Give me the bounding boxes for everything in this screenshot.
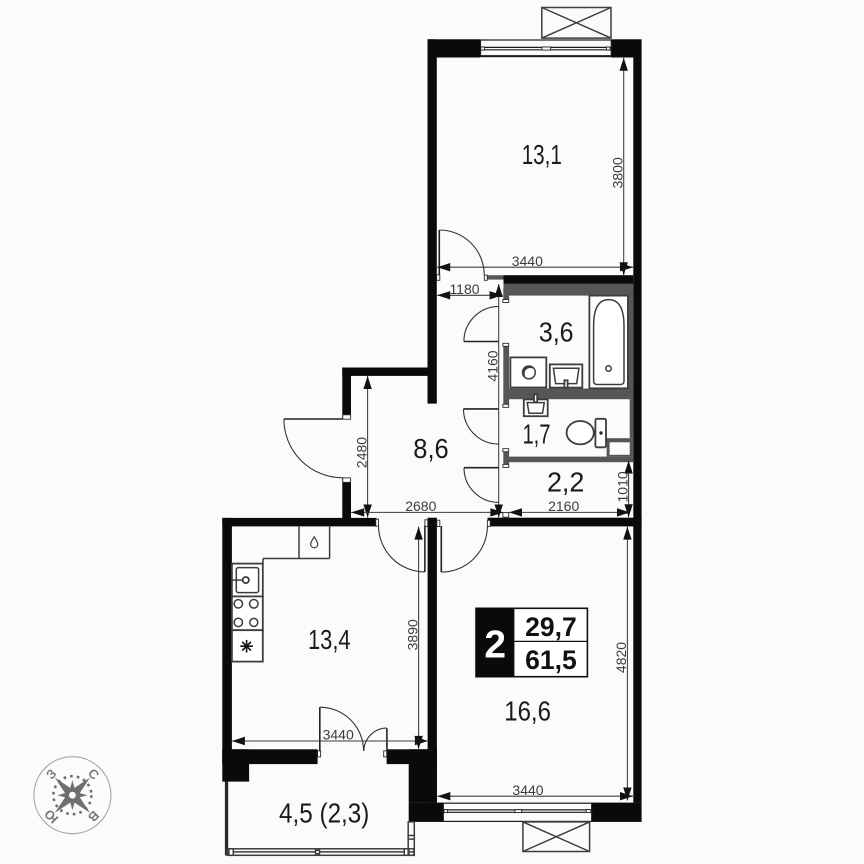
svg-text:2160: 2160 (548, 498, 579, 514)
svg-text:16,6: 16,6 (504, 695, 551, 726)
svg-text:13,1: 13,1 (522, 139, 562, 170)
svg-text:1010: 1010 (614, 471, 630, 502)
svg-text:61,5: 61,5 (525, 645, 577, 675)
svg-text:4820: 4820 (613, 642, 629, 673)
svg-text:29,7: 29,7 (525, 612, 577, 642)
svg-text:8,6: 8,6 (413, 433, 448, 464)
svg-text:3800: 3800 (609, 157, 625, 188)
svg-text:3440: 3440 (323, 727, 354, 743)
svg-text:4,5 (2,3): 4,5 (2,3) (279, 798, 369, 829)
svg-text:3890: 3890 (404, 619, 420, 650)
svg-text:2: 2 (484, 624, 506, 667)
svg-text:4160: 4160 (484, 350, 500, 381)
svg-text:1,7: 1,7 (522, 418, 550, 449)
svg-text:3,6: 3,6 (539, 317, 574, 348)
svg-text:2,2: 2,2 (547, 467, 585, 498)
svg-text:2480: 2480 (353, 437, 369, 468)
svg-text:2680: 2680 (405, 498, 436, 514)
svg-text:3440: 3440 (512, 253, 543, 269)
svg-text:13,4: 13,4 (308, 624, 351, 655)
svg-text:1180: 1180 (449, 281, 479, 297)
svg-text:3440: 3440 (512, 782, 543, 798)
